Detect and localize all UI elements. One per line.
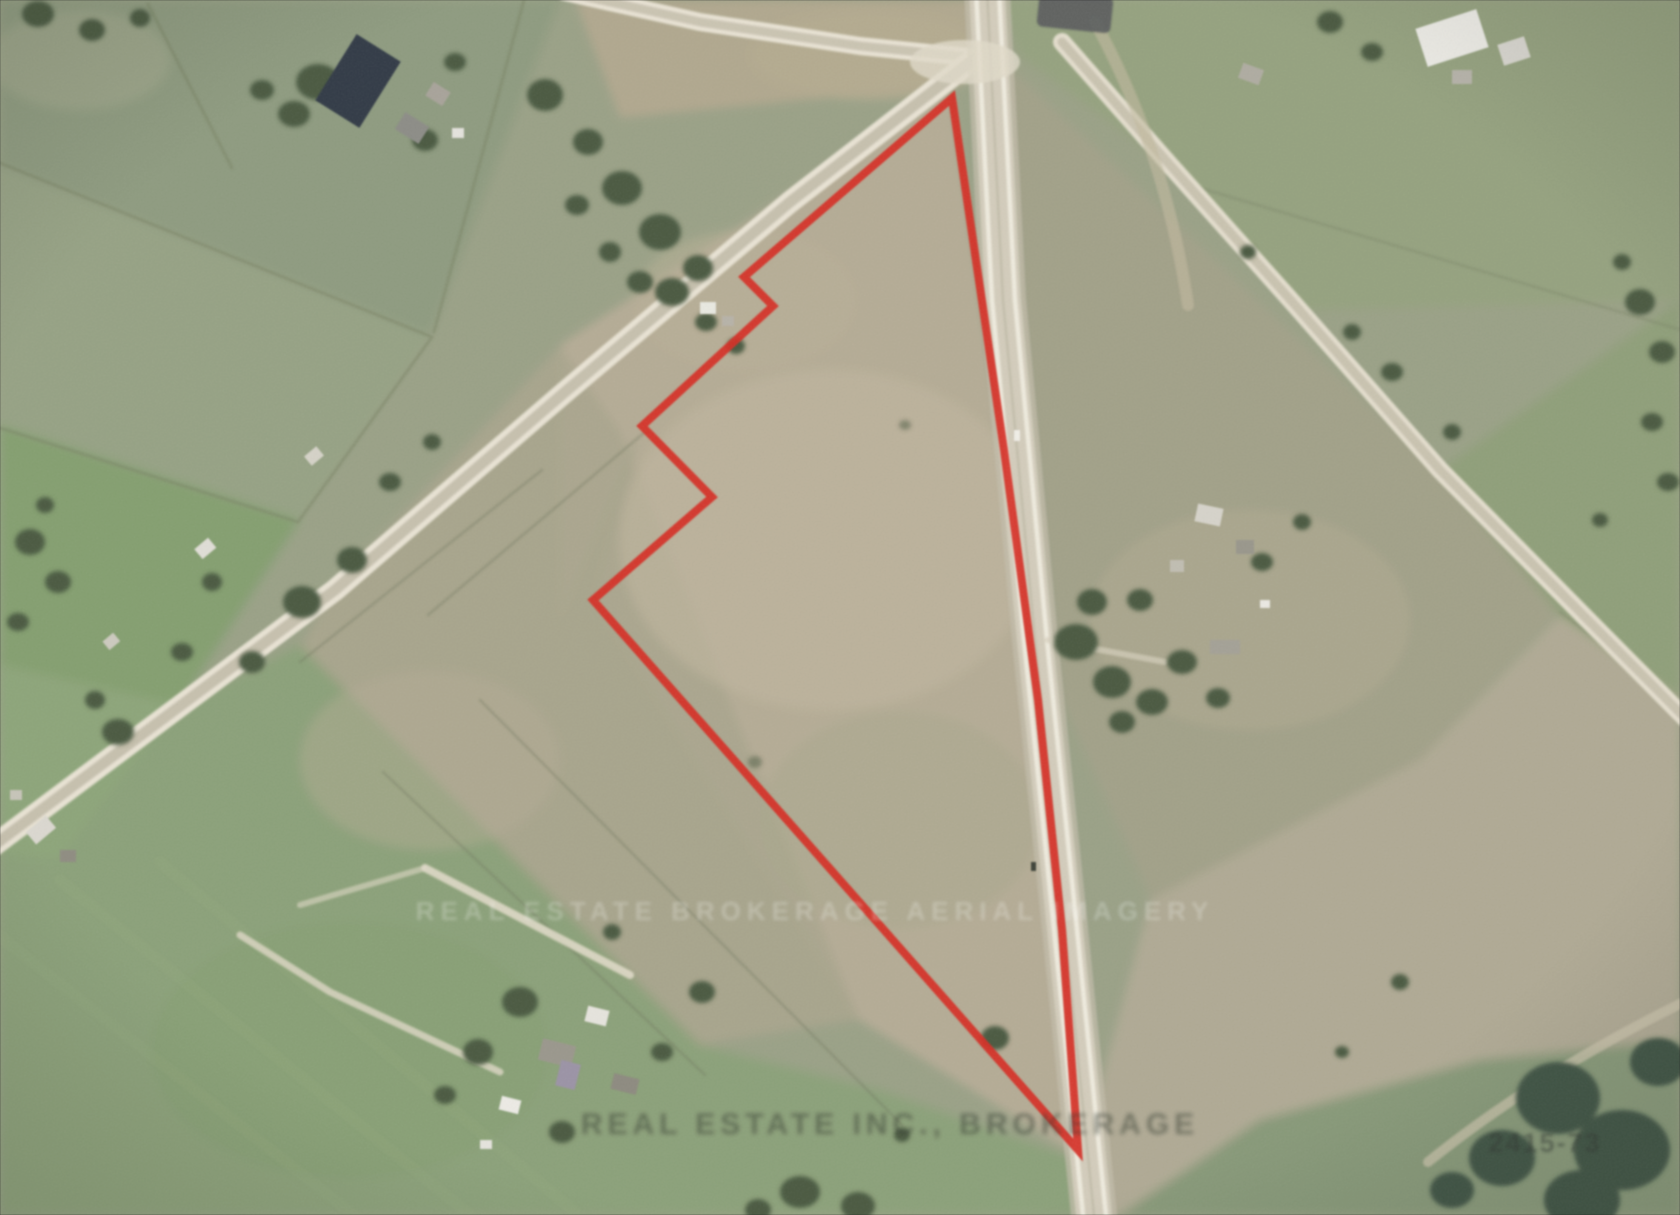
aerial-photo-canvas: REAL ESTATE BROKERAGE AERIAL IMAGERY REA… <box>0 0 1680 1215</box>
aerial-photo: REAL ESTATE BROKERAGE AERIAL IMAGERY REA… <box>0 0 1680 1215</box>
vignette-overlay <box>0 0 1680 1215</box>
